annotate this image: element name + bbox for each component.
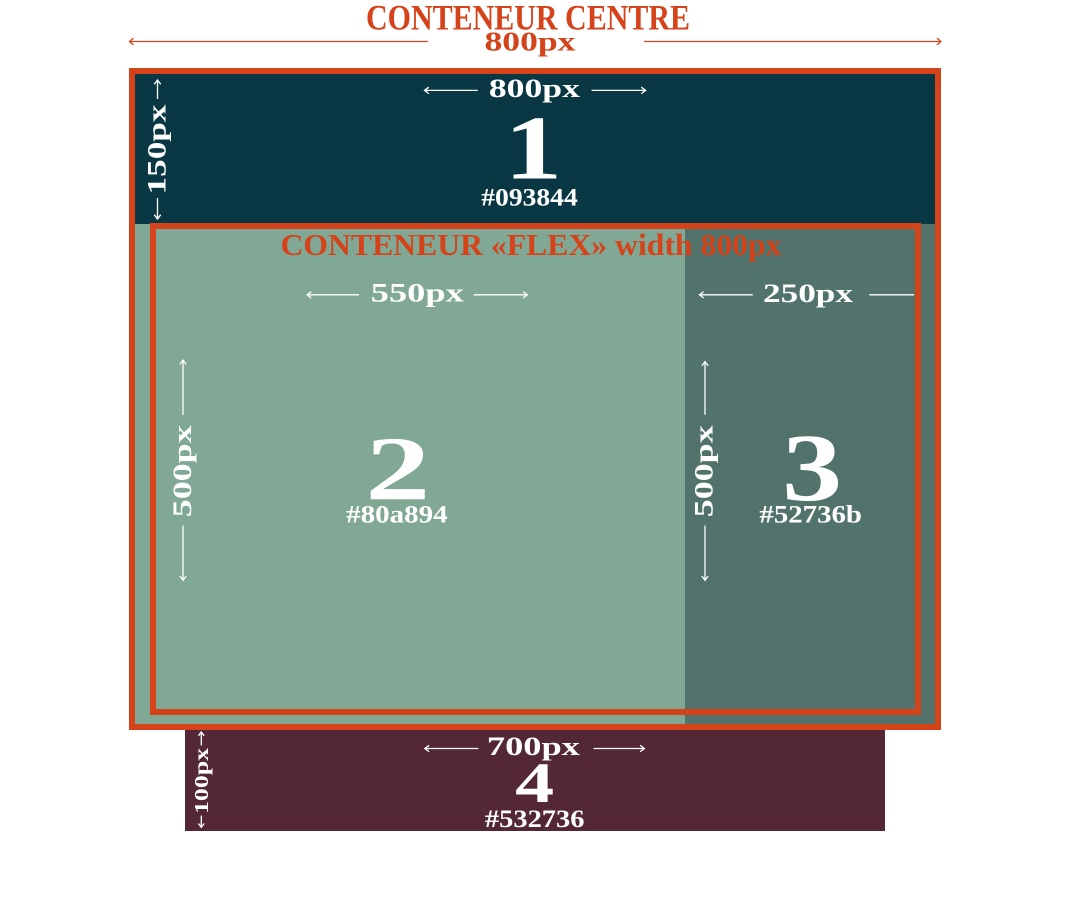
svg-text:500px: 500px <box>689 425 718 517</box>
svg-text:550px: 550px <box>371 279 464 308</box>
svg-text:#80a894: #80a894 <box>346 502 448 529</box>
svg-text:#52736b: #52736b <box>759 501 862 528</box>
svg-text:1: 1 <box>504 97 562 198</box>
svg-text:#093844: #093844 <box>481 184 578 211</box>
svg-text:100px: 100px <box>191 748 213 814</box>
svg-text:800px: 800px <box>485 26 577 56</box>
svg-text:150px: 150px <box>143 105 172 195</box>
svg-text:500px: 500px <box>168 425 197 517</box>
svg-text:CONTENEUR «FLEX» width 800px: CONTENEUR «FLEX» width 800px <box>281 227 782 262</box>
svg-text:250px: 250px <box>763 279 853 308</box>
svg-text:#532736: #532736 <box>485 806 585 833</box>
